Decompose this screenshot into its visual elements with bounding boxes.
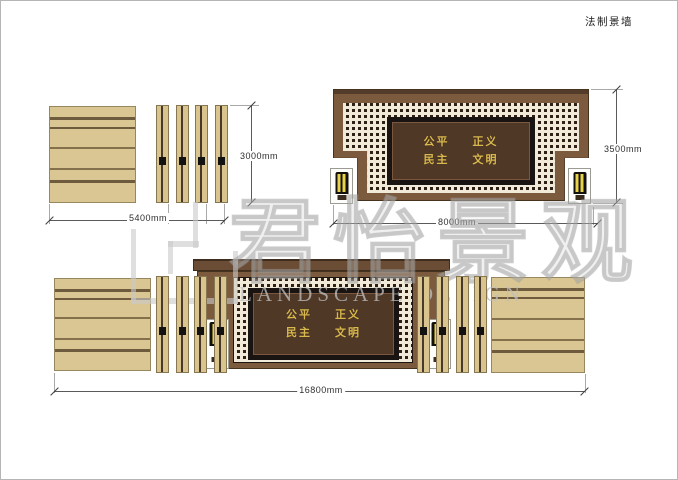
wood-post [456, 276, 469, 373]
wood-wall-panel [54, 278, 151, 371]
wood-wall-panel [491, 277, 585, 373]
watermark-logo-bar [168, 241, 173, 274]
dim-label-16800: 16800mm [297, 385, 345, 395]
extension-line [230, 105, 259, 106]
extension-line [593, 203, 623, 204]
plaque-row2: 民主 文明 [423, 155, 498, 166]
extension-line [206, 204, 207, 224]
wall-cap [334, 90, 588, 94]
watermark-logo-bar [193, 202, 198, 248]
wood-post [214, 276, 227, 373]
dim-label-5400: 5400mm [127, 213, 169, 223]
lamp-icon [335, 172, 348, 194]
plaque-row1: 公平 正义 [286, 310, 361, 321]
lamp-icon [573, 172, 586, 194]
dim-label-3500: 3500mm [602, 144, 644, 154]
wood-wall-panel [49, 106, 136, 203]
extension-line [591, 89, 623, 90]
page-title: 法制景墙 [585, 14, 633, 29]
wood-post [156, 276, 169, 373]
plaque: 公平 正义 民主 文明 [387, 117, 535, 185]
wall-coping [193, 259, 450, 271]
lamp-pillar [568, 168, 591, 204]
wood-post [474, 276, 487, 373]
dim-label-8000: 8000mm [436, 217, 478, 227]
wood-post [176, 105, 189, 203]
dim-label-3000: 3000mm [238, 151, 280, 161]
wood-post [436, 276, 449, 373]
wood-post [176, 276, 189, 373]
pillar-base [575, 195, 584, 200]
wood-post [194, 276, 207, 373]
wood-post [417, 276, 430, 373]
lamp-pillar [330, 168, 353, 204]
plaque-row1: 公平 正义 [423, 137, 498, 148]
feature-wall: 公平 正义 民主 文明 [333, 89, 589, 201]
pillar-base [337, 195, 346, 200]
wood-post [195, 105, 208, 203]
wood-post [156, 105, 169, 203]
plaque-row2: 民主 文明 [286, 328, 361, 339]
watermark-logo-bar [168, 241, 199, 247]
plaque: 公平 正义 民主 文明 [248, 288, 399, 360]
drawing-sheet: 法制景墙 3000mm 5400mm 公平 正义 民主 文明 [0, 0, 678, 480]
wood-post [215, 105, 228, 203]
